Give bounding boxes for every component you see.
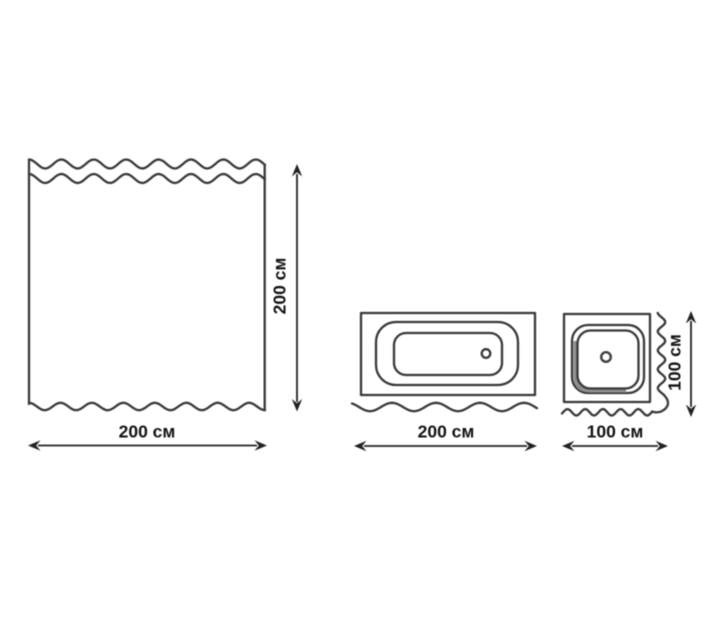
svg-text:200 см: 200 см (270, 258, 290, 315)
svg-text:200 см: 200 см (418, 422, 475, 442)
svg-text:100 см: 100 см (587, 422, 644, 442)
svg-text:100 см: 100 см (665, 334, 685, 391)
svg-text:200 см: 200 см (119, 422, 176, 442)
